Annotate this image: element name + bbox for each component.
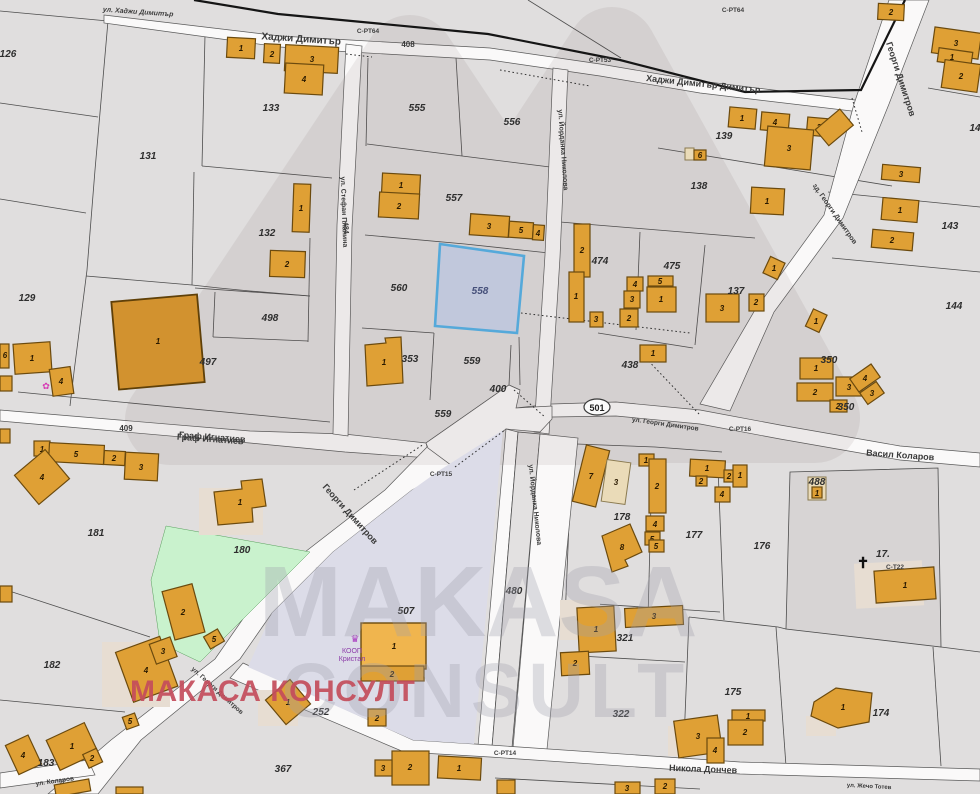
svg-text:17.: 17. [876, 549, 890, 560]
svg-text:4: 4 [535, 229, 541, 238]
svg-text:138: 138 [691, 181, 708, 192]
svg-text:2: 2 [89, 754, 95, 763]
svg-text:1: 1 [30, 354, 35, 363]
svg-text:С-РТ64: С-РТ64 [357, 28, 380, 35]
svg-text:2: 2 [111, 454, 117, 463]
svg-text:178: 178 [614, 512, 631, 523]
svg-text:180: 180 [234, 545, 251, 556]
svg-text:3: 3 [870, 389, 875, 398]
svg-text:474: 474 [591, 256, 609, 267]
svg-text:5: 5 [128, 717, 133, 726]
svg-text:3: 3 [594, 315, 599, 324]
svg-text:6: 6 [698, 151, 703, 160]
svg-text:2: 2 [180, 608, 186, 617]
svg-text:556: 556 [504, 117, 521, 128]
svg-text:1: 1 [156, 337, 161, 346]
svg-text:4: 4 [58, 377, 64, 386]
svg-text:2: 2 [662, 782, 668, 791]
svg-text:2: 2 [753, 298, 759, 307]
svg-text:129: 129 [19, 293, 36, 304]
svg-text:132: 132 [259, 228, 276, 239]
svg-text:1: 1 [705, 464, 710, 473]
svg-text:1: 1 [239, 44, 244, 53]
svg-text:438: 438 [621, 360, 639, 371]
svg-text:4: 4 [772, 118, 778, 127]
svg-text:3: 3 [847, 383, 852, 392]
svg-text:2: 2 [284, 260, 290, 269]
svg-text:3: 3 [161, 647, 166, 656]
svg-text:5: 5 [519, 226, 524, 235]
svg-text:144: 144 [946, 301, 963, 312]
svg-text:2: 2 [958, 72, 964, 81]
svg-text:367: 367 [275, 764, 292, 775]
svg-text:175: 175 [725, 687, 742, 698]
svg-text:488: 488 [808, 477, 826, 488]
svg-text:126: 126 [0, 49, 17, 60]
svg-text:131: 131 [140, 151, 157, 162]
svg-text:1: 1 [299, 204, 304, 213]
svg-text:MAKASA: MAKASA [259, 546, 698, 658]
svg-text:3: 3 [614, 478, 619, 487]
svg-text:4: 4 [632, 280, 638, 289]
svg-text:1: 1 [814, 364, 819, 373]
svg-text:3: 3 [487, 222, 492, 231]
svg-text:484: 484 [342, 222, 349, 234]
svg-text:4: 4 [652, 520, 658, 529]
svg-text:3: 3 [139, 463, 144, 472]
svg-text:1: 1 [738, 471, 743, 480]
svg-text:497: 497 [199, 357, 217, 368]
svg-text:409: 409 [119, 424, 133, 433]
svg-text:3: 3 [787, 144, 792, 153]
svg-text:555: 555 [409, 103, 426, 114]
svg-text:177: 177 [686, 530, 703, 541]
svg-text:6: 6 [3, 351, 8, 360]
svg-text:1: 1 [70, 742, 75, 751]
svg-text:3: 3 [630, 295, 635, 304]
svg-text:498: 498 [261, 313, 279, 324]
svg-text:182: 182 [44, 660, 61, 671]
svg-text:181: 181 [88, 528, 105, 539]
svg-text:501: 501 [589, 403, 604, 413]
svg-text:1: 1 [382, 358, 387, 367]
svg-text:400: 400 [489, 384, 507, 395]
svg-text:3: 3 [381, 764, 386, 773]
svg-text:1: 1 [457, 764, 462, 773]
svg-text:С-РТ53: С-РТ53 [589, 57, 612, 64]
svg-text:5: 5 [658, 277, 663, 286]
svg-text:С-Т22: С-Т22 [886, 564, 904, 571]
svg-text:139: 139 [716, 131, 733, 142]
svg-text:С-РТ64: С-РТ64 [722, 7, 745, 14]
svg-text:✿: ✿ [42, 381, 50, 391]
svg-text:2: 2 [396, 202, 402, 211]
svg-text:408: 408 [401, 40, 415, 49]
svg-text:560: 560 [391, 283, 408, 294]
svg-text:353: 353 [402, 354, 419, 365]
svg-text:3: 3 [954, 39, 959, 48]
svg-text:4: 4 [719, 490, 725, 499]
svg-text:3: 3 [696, 732, 701, 741]
svg-text:2: 2 [812, 388, 818, 397]
svg-text:3: 3 [625, 784, 630, 793]
svg-text:475: 475 [663, 261, 681, 272]
svg-text:3: 3 [899, 170, 904, 179]
svg-text:1: 1 [815, 489, 820, 498]
svg-text:1: 1 [740, 114, 745, 123]
svg-text:1: 1 [238, 498, 243, 507]
svg-text:350: 350 [838, 402, 855, 413]
svg-text:3: 3 [720, 304, 725, 313]
svg-text:174: 174 [873, 708, 890, 719]
svg-text:4: 4 [39, 473, 45, 482]
svg-text:133: 133 [263, 103, 280, 114]
svg-text:558: 558 [472, 286, 489, 297]
svg-text:4: 4 [301, 75, 307, 84]
svg-text:14: 14 [969, 123, 980, 134]
svg-text:5: 5 [212, 635, 217, 644]
svg-text:7: 7 [589, 472, 594, 481]
svg-text:1: 1 [903, 581, 908, 590]
svg-text:✝: ✝ [857, 555, 870, 572]
svg-text:2: 2 [626, 314, 632, 323]
svg-text:2: 2 [579, 246, 585, 255]
svg-text:1: 1 [772, 264, 777, 273]
svg-text:137: 137 [728, 286, 745, 297]
svg-text:559: 559 [435, 409, 452, 420]
svg-text:2: 2 [742, 728, 748, 737]
svg-text:2: 2 [698, 477, 704, 486]
svg-text:1: 1 [765, 197, 770, 206]
svg-text:183: 183 [38, 758, 55, 769]
svg-text:1: 1 [574, 292, 579, 301]
svg-text:С-РТ15: С-РТ15 [430, 471, 453, 478]
svg-text:350: 350 [821, 355, 838, 366]
svg-text:557: 557 [446, 193, 463, 204]
svg-text:1: 1 [898, 206, 903, 215]
svg-text:4: 4 [20, 751, 26, 760]
svg-text:2: 2 [726, 472, 732, 481]
svg-text:176: 176 [754, 541, 771, 552]
svg-text:1: 1 [814, 317, 819, 326]
svg-text:1: 1 [644, 456, 649, 465]
svg-text:1: 1 [399, 181, 404, 190]
svg-text:4: 4 [862, 374, 868, 383]
svg-text:4: 4 [143, 666, 149, 675]
svg-text:4: 4 [712, 746, 718, 755]
svg-text:2: 2 [407, 763, 413, 772]
svg-text:559: 559 [464, 356, 481, 367]
svg-text:3: 3 [310, 55, 315, 64]
svg-text:2: 2 [889, 236, 895, 245]
svg-text:5: 5 [74, 450, 79, 459]
svg-text:143: 143 [942, 221, 959, 232]
svg-text:МАКАСА КОНСУЛТ: МАКАСА КОНСУЛТ [130, 675, 415, 708]
svg-text:1: 1 [659, 295, 664, 304]
svg-text:1: 1 [651, 349, 656, 358]
svg-text:1: 1 [841, 703, 846, 712]
svg-text:С-РТ14: С-РТ14 [494, 750, 517, 757]
svg-text:2: 2 [654, 482, 660, 491]
svg-text:2: 2 [888, 8, 894, 17]
svg-text:2: 2 [269, 50, 275, 59]
svg-text:С-РТ16: С-РТ16 [729, 426, 752, 433]
